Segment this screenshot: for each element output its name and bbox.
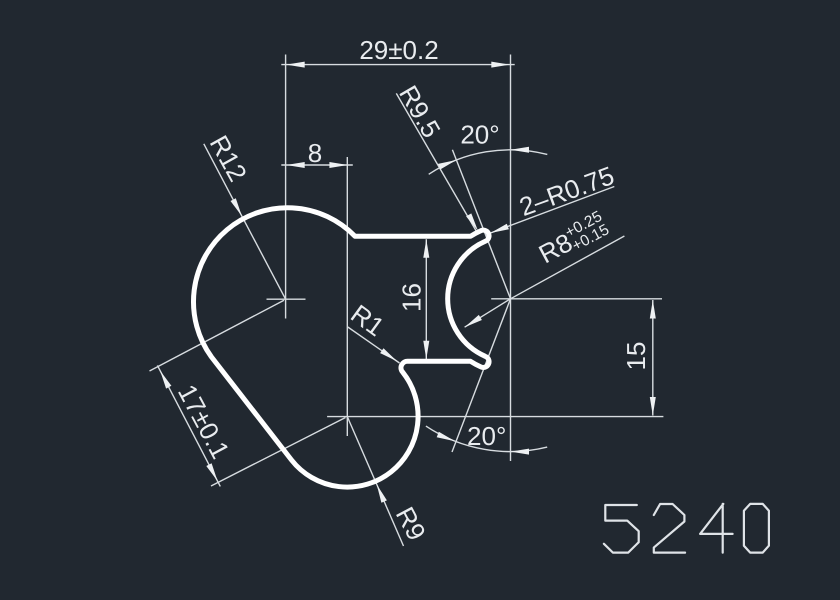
svg-text:16: 16 [397,283,427,312]
svg-text:8: 8 [308,138,322,168]
svg-text:29±0.2: 29±0.2 [359,35,438,65]
svg-text:20°: 20° [467,421,506,451]
svg-text:15: 15 [621,342,651,371]
svg-text:20°: 20° [460,120,499,150]
